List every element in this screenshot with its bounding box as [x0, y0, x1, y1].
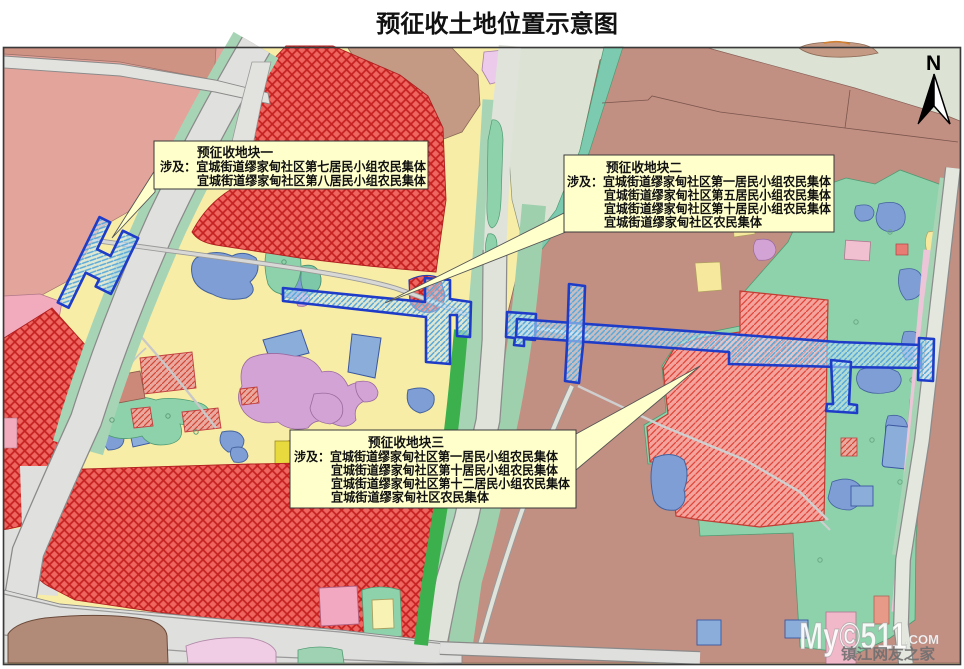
svg-text:宜城街道缪家甸社区农民集体: 宜城街道缪家甸社区农民集体 [331, 490, 489, 505]
svg-text:涉及：宜城街道缪家甸社区第一居民小组农民集体: 涉及：宜城街道缪家甸社区第一居民小组农民集体 [567, 174, 831, 189]
svg-text:涉及：宜城街道缪家甸社区第七居民小组农民集体: 涉及：宜城街道缪家甸社区第七居民小组农民集体 [160, 159, 426, 174]
svg-text:预征收地块二: 预征收地块二 [606, 160, 682, 175]
svg-text:预征收地块一: 预征收地块一 [197, 145, 273, 160]
svg-text:镇江网友之家: 镇江网友之家 [841, 645, 935, 663]
svg-text:宜城街道缪家甸社区第十居民小组农民集体: 宜城街道缪家甸社区第十居民小组农民集体 [604, 201, 831, 216]
svg-text:宜城街道缪家甸社区第十二居民小组农民集体: 宜城街道缪家甸社区第十二居民小组农民集体 [331, 476, 570, 491]
svg-text:宜城街道缪家甸社区第八居民小组农民集体: 宜城街道缪家甸社区第八居民小组农民集体 [197, 173, 426, 188]
svg-text:宜城街道缪家甸社区第十居民小组农民集体: 宜城街道缪家甸社区第十居民小组农民集体 [331, 463, 558, 478]
svg-text:宜城街道缪家甸社区第五居民小组农民集体: 宜城街道缪家甸社区第五居民小组农民集体 [604, 188, 831, 203]
svg-text:.COM: .COM [905, 632, 939, 647]
svg-text:N: N [926, 52, 941, 75]
svg-text:预征收土地位置示意图: 预征收土地位置示意图 [376, 10, 618, 38]
svg-text:涉及：宜城街道缪家甸社区第一居民小组农民集体: 涉及：宜城街道缪家甸社区第一居民小组农民集体 [294, 449, 558, 464]
svg-text:宜城街道缪家甸社区农民集体: 宜城街道缪家甸社区农民集体 [604, 215, 762, 230]
svg-text:预征收地块三: 预征收地块三 [368, 435, 444, 450]
